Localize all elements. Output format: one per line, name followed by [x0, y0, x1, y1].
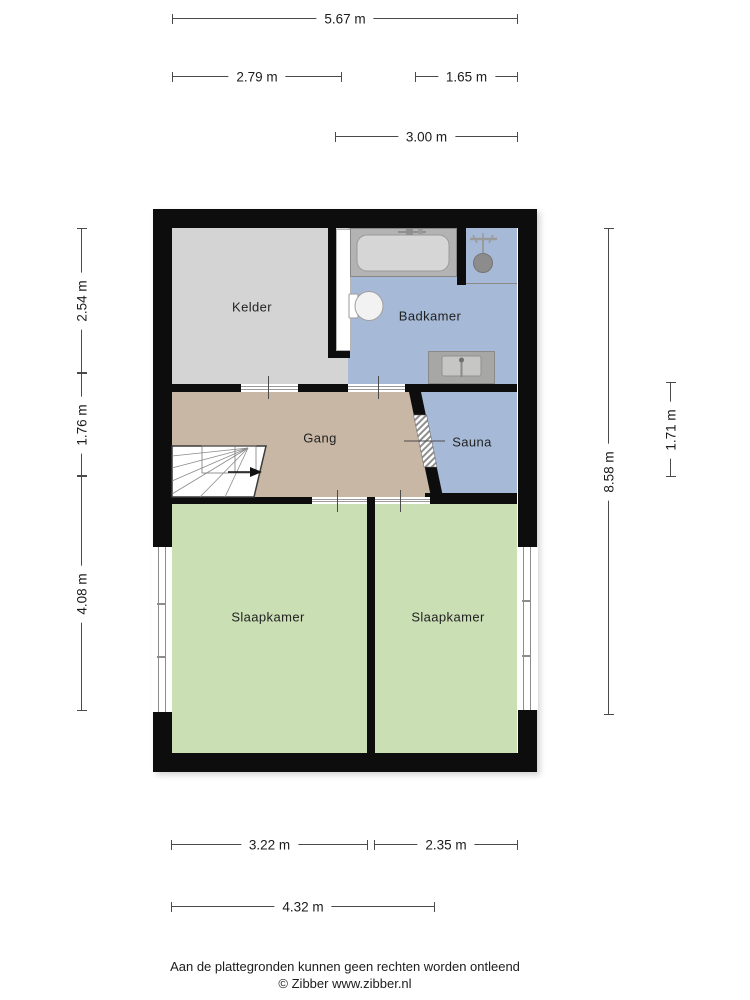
wall-shower-stub	[457, 228, 466, 285]
sink-icon	[428, 351, 495, 384]
door-threshold-icon	[375, 497, 430, 504]
dimension-label: 4.32 m	[274, 900, 331, 915]
room-label-badkamer: Badkamer	[399, 309, 461, 324]
footer-copyright: © Zibber www.zibber.nl	[170, 976, 520, 993]
wall-bedroom-divider	[367, 497, 375, 753]
wall-sauna-bottom	[425, 493, 517, 502]
door-tick	[400, 490, 401, 512]
wall-gang-top-mid	[298, 384, 348, 392]
wall-gang-top-left	[172, 384, 241, 392]
wall-right-upper	[518, 209, 537, 547]
door-threshold-icon	[348, 384, 405, 392]
toilet-icon	[346, 289, 386, 323]
dimension-bottom-inner: 4.32 m	[171, 906, 435, 907]
footer-disclaimer: Aan de plattegronden kunnen geen rechten…	[170, 959, 520, 976]
dimension-top-full: 5.67 m	[172, 18, 518, 19]
door-tick	[268, 376, 269, 399]
room-label-sauna: Sauna	[452, 435, 492, 450]
room-label-kelder: Kelder	[232, 300, 272, 315]
room-label-slaapkamer-left: Slaapkamer	[231, 610, 304, 625]
room-label-gang: Gang	[303, 431, 336, 446]
window-glass	[523, 547, 531, 710]
wall-right-lower	[518, 710, 537, 772]
door-tick	[337, 490, 338, 512]
dimension-label: 3.22 m	[241, 838, 298, 853]
dimension-bottom-right: 2.35 m	[374, 844, 518, 845]
stairs-icon	[170, 444, 270, 499]
wall-kelder-cap	[328, 350, 350, 358]
dimension-top-left: 2.79 m	[172, 76, 342, 77]
door-threshold-icon	[241, 384, 298, 392]
dimension-label: 4.08 m	[75, 565, 90, 622]
dimension-right-full: 8.58 m	[608, 228, 609, 715]
dimension-label: 3.00 m	[398, 130, 455, 145]
wall-kelder-badkamer	[328, 228, 336, 358]
dimension-left-upper: 2.54 m	[81, 228, 82, 373]
footer: Aan de plattegronden kunnen geen rechten…	[170, 959, 520, 992]
wall-left-lower	[153, 712, 172, 772]
dimension-label: 2.79 m	[228, 70, 285, 85]
window-divider	[157, 603, 166, 605]
dimension-label: 1.65 m	[438, 70, 495, 85]
door-tick	[378, 376, 379, 399]
window-divider	[157, 656, 166, 658]
dimension-right-inner: 1.71 m	[670, 382, 671, 477]
wall-top	[153, 209, 537, 228]
window-glass	[158, 547, 166, 712]
dimension-label: 1.71 m	[664, 401, 679, 458]
dimension-label: 2.35 m	[417, 838, 474, 853]
dimension-label: 2.54 m	[75, 272, 90, 329]
dimension-top-right: 1.65 m	[415, 76, 518, 77]
window-icon	[152, 547, 172, 712]
window-divider	[522, 655, 531, 657]
window-icon	[518, 547, 538, 710]
shower-icon	[466, 228, 517, 285]
room-slaapkamer-left-floor	[172, 504, 367, 753]
room-slaapkamer-right-floor	[375, 504, 517, 753]
dimension-label: 1.76 m	[75, 396, 90, 453]
wall-sauna-top	[405, 384, 517, 392]
window-divider	[522, 600, 531, 602]
dimension-label: 8.58 m	[602, 443, 617, 500]
dimension-left-middle: 1.76 m	[81, 373, 82, 476]
dimension-top-inner: 3.00 m	[335, 136, 518, 137]
door-threshold-icon	[312, 497, 367, 504]
wall-bottom	[153, 753, 537, 772]
dimension-left-lower: 4.08 m	[81, 476, 82, 711]
floorplan-page: 5.67 m 2.79 m 1.65 m 3.00 m 2.54 m 1.76 …	[0, 0, 750, 1000]
room-label-slaapkamer-right: Slaapkamer	[411, 610, 484, 625]
dimension-bottom-left: 3.22 m	[171, 844, 368, 845]
bathtub-icon	[350, 228, 457, 277]
dimension-label: 5.67 m	[316, 12, 373, 27]
